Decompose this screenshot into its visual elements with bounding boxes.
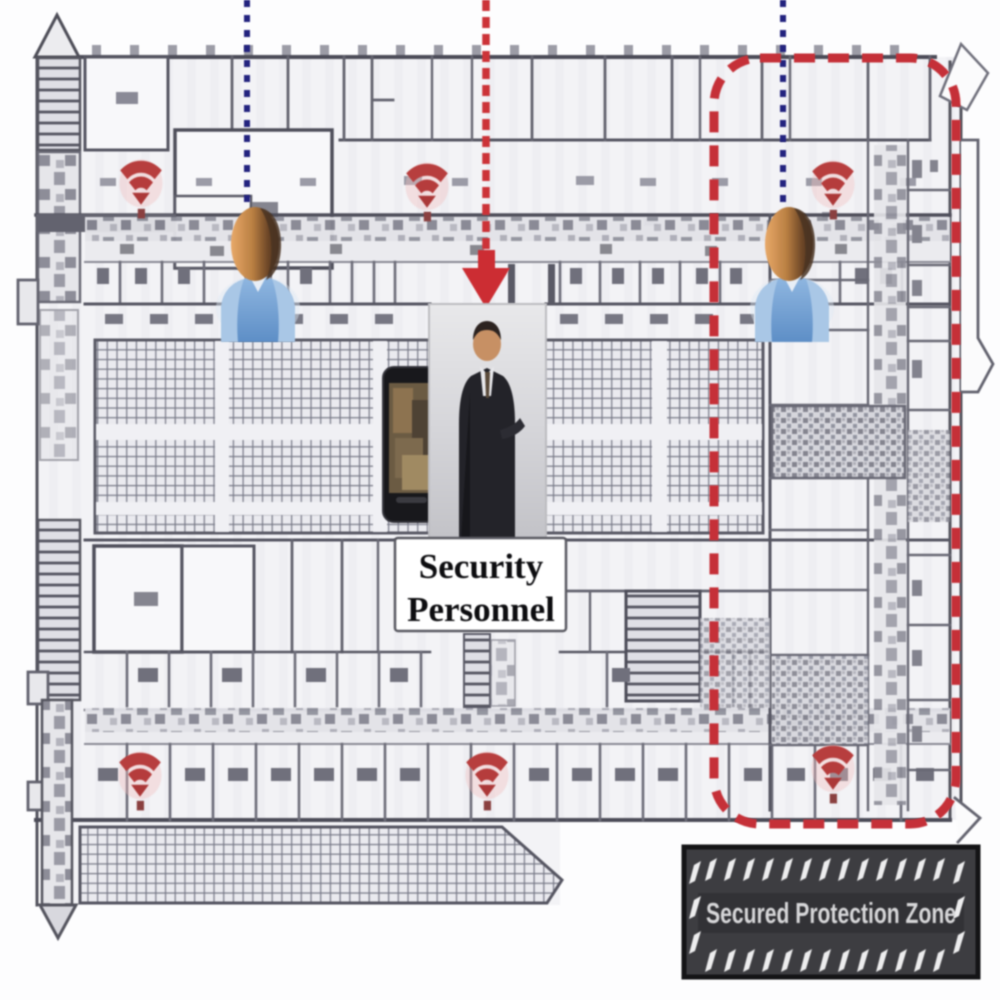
svg-text:Secured Protection Zone: Secured Protection Zone <box>706 898 956 930</box>
svg-text:Personnel: Personnel <box>407 590 555 629</box>
svg-text:Security: Security <box>419 547 544 586</box>
